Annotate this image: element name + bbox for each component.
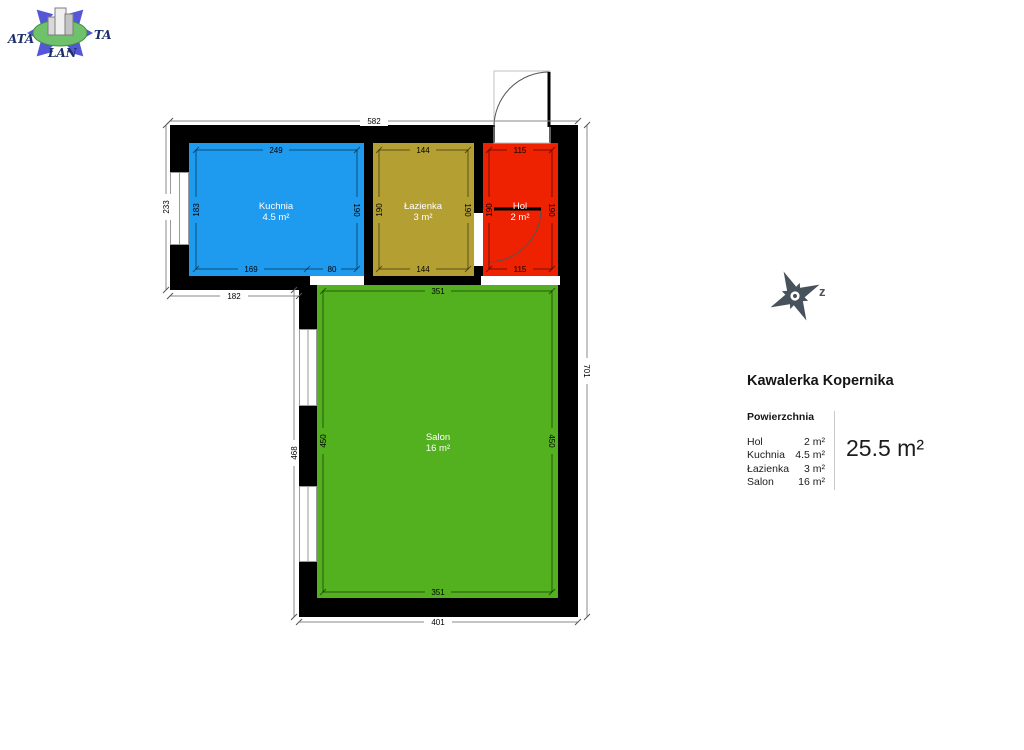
svg-text:16 m²: 16 m² — [426, 443, 450, 454]
logo-text-bottom: LAN — [47, 46, 78, 60]
dim-outer-left-upper: 233 — [161, 122, 171, 293]
svg-text:115: 115 — [514, 146, 527, 155]
legend-row-hol: Hol 2 m² — [747, 436, 825, 449]
dim-outer-bottom-left: 182 — [167, 291, 302, 301]
dim-outer-bottom: 401 — [296, 617, 581, 627]
svg-text:144: 144 — [416, 265, 430, 274]
label-salon: Salon 16 m² — [426, 432, 450, 454]
svg-text:468: 468 — [290, 446, 299, 460]
svg-text:190: 190 — [463, 203, 472, 217]
svg-text:450: 450 — [547, 434, 556, 448]
total-area: 25.5 m² — [835, 435, 924, 490]
svg-text:351: 351 — [431, 588, 445, 597]
svg-text:190: 190 — [375, 203, 384, 217]
logo-text-left: ATA — [7, 32, 34, 46]
area-legend-header: Powierzchnia — [747, 411, 825, 423]
legend-row-label: Kuchnia — [747, 449, 785, 462]
svg-text:582: 582 — [367, 117, 381, 126]
passage-kuchnia-salon — [310, 276, 364, 285]
svg-text:190: 190 — [352, 203, 361, 217]
legend-row-value: 2 m² — [804, 436, 825, 449]
legend-row-value: 16 m² — [798, 476, 825, 489]
legend-row-salon: Salon 16 m² — [747, 476, 825, 489]
logo-text-right: TA — [94, 28, 112, 42]
page-title: Kawalerka Kopernika — [747, 373, 894, 389]
logo-buildings-icon — [48, 8, 73, 35]
window-salon-upper — [299, 329, 317, 406]
area-legend: Powierzchnia Hol 2 m² Kuchnia 4.5 m² Łaz… — [747, 411, 924, 490]
legend-row-value: 3 m² — [804, 463, 825, 476]
area-legend-table: Powierzchnia Hol 2 m² Kuchnia 4.5 m² Łaz… — [747, 411, 825, 490]
svg-text:190: 190 — [485, 203, 494, 217]
svg-text:351: 351 — [431, 287, 445, 296]
legend-row-label: Łazienka — [747, 463, 789, 476]
label-hol: Hol 2 m² — [511, 201, 530, 223]
label-kuchnia: Kuchnia 4.5 m² — [259, 201, 294, 223]
svg-text:Kuchnia: Kuchnia — [259, 201, 294, 212]
dim-outer-left-lower: 468 — [289, 287, 299, 620]
legend-row-kuchnia: Kuchnia 4.5 m² — [747, 449, 825, 462]
svg-text:2 m²: 2 m² — [511, 212, 530, 223]
svg-text:182: 182 — [227, 292, 241, 301]
legend-row-value: 4.5 m² — [795, 449, 825, 462]
svg-text:115: 115 — [514, 265, 527, 274]
legend-row-label: Salon — [747, 476, 774, 489]
compass-direction-label: z — [819, 284, 826, 299]
svg-text:249: 249 — [269, 146, 283, 155]
legend-row-label: Hol — [747, 436, 763, 449]
svg-text:450: 450 — [319, 434, 328, 448]
svg-text:701: 701 — [582, 364, 591, 378]
svg-text:80: 80 — [328, 265, 337, 274]
svg-text:Hol: Hol — [513, 201, 527, 212]
dim-outer-right: 701 — [582, 122, 592, 620]
entry-door-opening — [495, 125, 549, 143]
svg-text:169: 169 — [244, 265, 258, 274]
svg-text:401: 401 — [431, 618, 445, 627]
svg-text:190: 190 — [547, 203, 556, 217]
svg-text:4.5 m²: 4.5 m² — [263, 212, 290, 223]
passage-hol-salon — [481, 276, 560, 285]
window-kuchnia — [170, 172, 189, 245]
agency-logo: ATA TA LAN — [7, 4, 112, 63]
svg-text:144: 144 — [416, 146, 430, 155]
compass-icon: z — [759, 260, 831, 332]
svg-text:Łazienka: Łazienka — [404, 201, 443, 212]
door-opening-lazienka-hol — [474, 213, 483, 266]
svg-text:3 m²: 3 m² — [414, 212, 433, 223]
legend-row-lazienka: Łazienka 3 m² — [747, 463, 825, 476]
window-salon-lower — [299, 486, 317, 562]
svg-text:183: 183 — [192, 203, 201, 217]
svg-text:233: 233 — [162, 200, 171, 214]
dim-outer-top: 582 — [167, 116, 581, 126]
svg-text:Salon: Salon — [426, 432, 450, 443]
